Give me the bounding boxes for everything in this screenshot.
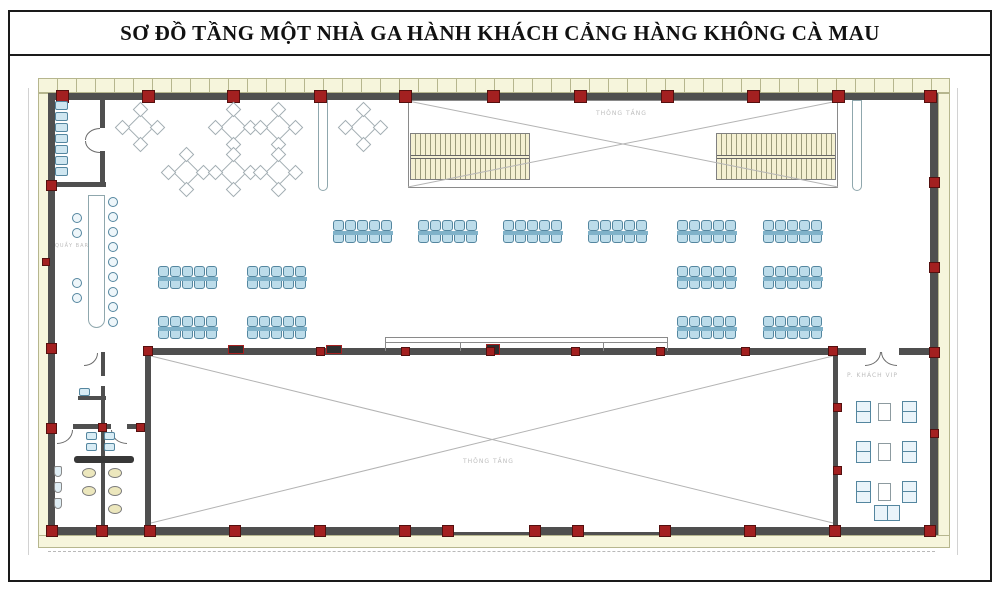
waiting-bench xyxy=(333,220,397,246)
seat xyxy=(725,316,736,327)
column xyxy=(929,347,940,358)
seat xyxy=(677,316,688,327)
seat xyxy=(206,316,217,327)
seat xyxy=(442,220,453,231)
seat xyxy=(787,266,798,277)
column xyxy=(829,525,841,537)
vip-chair xyxy=(856,401,871,423)
seat xyxy=(799,220,810,231)
waiting-bench xyxy=(763,220,827,246)
vip-side-table xyxy=(874,505,900,521)
column xyxy=(142,90,155,103)
bar-stool xyxy=(72,228,82,238)
bench-back xyxy=(158,277,218,281)
urinal xyxy=(54,482,62,493)
waiting-bench xyxy=(588,220,652,246)
cafe-chair xyxy=(150,119,166,135)
column xyxy=(143,346,153,356)
wall-room1-bottom xyxy=(48,182,106,187)
seat xyxy=(283,316,294,327)
sink xyxy=(79,388,90,396)
bench-back xyxy=(677,231,737,235)
cafe-chair xyxy=(115,119,131,135)
column xyxy=(46,343,57,354)
seat xyxy=(588,220,599,231)
column xyxy=(659,525,671,537)
wall-right xyxy=(930,100,938,527)
kiosk-block xyxy=(228,345,244,354)
waiting-bench xyxy=(677,220,741,246)
stair-rail xyxy=(411,155,529,159)
column xyxy=(316,347,325,356)
cafe-table xyxy=(255,104,301,150)
seat xyxy=(295,266,306,277)
wc-sink-counter xyxy=(74,456,134,463)
bench-back xyxy=(588,231,648,235)
column xyxy=(930,429,939,438)
column xyxy=(399,525,411,537)
sink xyxy=(86,443,97,451)
seat xyxy=(454,220,465,231)
wall-room1-lower xyxy=(100,151,105,185)
kiosk-block xyxy=(326,345,342,354)
bar-stool xyxy=(108,197,118,207)
seat xyxy=(799,266,810,277)
vip-chair xyxy=(856,441,871,463)
bar-stool xyxy=(72,278,82,288)
seat xyxy=(811,316,822,327)
bench-back xyxy=(503,231,563,235)
waiting-bench xyxy=(158,266,222,292)
seat xyxy=(701,220,712,231)
seat xyxy=(775,220,786,231)
seat xyxy=(182,316,193,327)
rack-seat xyxy=(55,134,68,143)
seat xyxy=(689,266,700,277)
cafe-chair xyxy=(178,182,194,198)
seat xyxy=(271,266,282,277)
entrance-door-line xyxy=(453,532,533,535)
seat xyxy=(247,316,258,327)
column xyxy=(924,90,937,103)
seat xyxy=(170,266,181,277)
column xyxy=(314,90,327,103)
seat xyxy=(466,220,477,231)
room-label: QUẦY BAR xyxy=(55,243,89,249)
column xyxy=(136,423,145,432)
column xyxy=(229,525,241,537)
bench-back xyxy=(763,231,823,235)
wall-inner-concourse xyxy=(148,348,935,355)
bar-stool xyxy=(72,293,82,303)
cafe-chair xyxy=(355,102,371,118)
column xyxy=(401,347,410,356)
seat xyxy=(430,220,441,231)
counter-tick xyxy=(385,343,386,351)
sink xyxy=(104,443,115,451)
floor-plan: THÔNG TẦNGTHÔNG TẦNGP. KHÁCH VIPQUẦY BAR xyxy=(0,0,1000,591)
rack-seat xyxy=(55,167,68,176)
seat xyxy=(259,266,270,277)
column xyxy=(96,525,108,537)
cafe-chair xyxy=(288,164,304,180)
cafe-chair xyxy=(225,182,241,198)
seat xyxy=(345,220,356,231)
column xyxy=(747,90,760,103)
service-counter xyxy=(385,337,668,343)
sink xyxy=(104,432,115,440)
stair-rail xyxy=(717,155,835,159)
seat xyxy=(725,266,736,277)
column xyxy=(314,525,326,537)
column xyxy=(571,347,580,356)
waiting-bench xyxy=(763,316,827,342)
seat xyxy=(677,220,688,231)
cafe-chair xyxy=(253,119,269,135)
cafe-chair xyxy=(270,182,286,198)
waiting-bench xyxy=(418,220,482,246)
seat xyxy=(701,266,712,277)
seat xyxy=(775,266,786,277)
seat xyxy=(636,220,647,231)
toilet xyxy=(108,486,122,496)
canopy-line-right xyxy=(957,88,958,555)
cafe-table xyxy=(210,149,256,195)
column xyxy=(574,90,587,103)
cafe-chair xyxy=(270,102,286,118)
cafe-chair xyxy=(373,119,389,135)
column xyxy=(833,466,842,475)
column xyxy=(529,525,541,537)
bench-back xyxy=(333,231,393,235)
column xyxy=(661,90,674,103)
seat xyxy=(787,220,798,231)
cafe-chair xyxy=(338,119,354,135)
counter-tick xyxy=(667,343,668,351)
cafe-chair xyxy=(225,147,241,163)
door-arc xyxy=(85,128,100,140)
urinal xyxy=(54,498,62,509)
bar-stool xyxy=(108,242,118,252)
seat xyxy=(381,220,392,231)
seat xyxy=(600,220,611,231)
vip-chair xyxy=(902,401,917,423)
seat xyxy=(418,220,429,231)
seat xyxy=(689,220,700,231)
cafe-chair xyxy=(355,137,371,153)
bench-back xyxy=(247,277,307,281)
bench-back xyxy=(677,327,737,331)
door-arc xyxy=(85,141,100,153)
seat xyxy=(701,316,712,327)
waiting-bench xyxy=(503,220,567,246)
column xyxy=(399,90,412,103)
rack-seat xyxy=(55,156,68,165)
door-gap xyxy=(57,424,73,429)
seat xyxy=(357,220,368,231)
bench-back xyxy=(158,327,218,331)
waiting-bench xyxy=(677,266,741,292)
outer-band-bottom xyxy=(38,535,950,548)
seat xyxy=(624,220,635,231)
seat xyxy=(787,316,798,327)
canopy-line-left xyxy=(28,88,29,555)
staircase-left xyxy=(410,133,530,180)
cafe-table xyxy=(210,104,256,150)
cafe-chair xyxy=(208,164,224,180)
rack-seat xyxy=(55,112,68,121)
toilet xyxy=(82,468,96,478)
column xyxy=(486,347,495,356)
counter-tick xyxy=(603,343,604,351)
cafe-chair xyxy=(161,164,177,180)
column xyxy=(144,525,156,537)
waiting-bench xyxy=(247,316,311,342)
column xyxy=(46,525,58,537)
seat xyxy=(158,266,169,277)
wall-room1-upper xyxy=(100,100,105,128)
bar-stool xyxy=(72,213,82,223)
seat xyxy=(799,316,810,327)
column xyxy=(832,90,845,103)
room-label: THÔNG TẦNG xyxy=(463,458,514,465)
vip-chair xyxy=(902,441,917,463)
bar-counter xyxy=(88,195,105,328)
vip-table xyxy=(878,483,891,501)
cafe-table xyxy=(255,149,301,195)
vip-table xyxy=(878,403,891,421)
toilet xyxy=(108,468,122,478)
bar-stool xyxy=(108,257,118,267)
seat xyxy=(194,266,205,277)
bench-back xyxy=(418,231,478,235)
column xyxy=(828,346,838,356)
seat xyxy=(713,266,724,277)
seat xyxy=(247,266,258,277)
door-arc xyxy=(865,352,881,366)
vip-chair xyxy=(856,481,871,503)
seat xyxy=(283,266,294,277)
toilet xyxy=(82,486,96,496)
door-arc xyxy=(881,352,897,366)
waiting-bench xyxy=(247,266,311,292)
seat xyxy=(515,220,526,231)
waiting-bench xyxy=(158,316,222,342)
sink xyxy=(86,432,97,440)
bar-stool xyxy=(108,317,118,327)
bar-stool xyxy=(108,272,118,282)
bar-stool xyxy=(108,212,118,222)
bench-back xyxy=(247,327,307,331)
cafe-chair xyxy=(270,147,286,163)
vip-table xyxy=(878,443,891,461)
column xyxy=(929,262,940,273)
column xyxy=(42,258,50,266)
column xyxy=(924,525,936,537)
seat xyxy=(763,220,774,231)
cafe-chair xyxy=(132,102,148,118)
cafe-chair xyxy=(178,147,194,163)
wall-hall-left xyxy=(145,352,151,528)
seat xyxy=(551,220,562,231)
bar-stool xyxy=(108,302,118,312)
screen-partition xyxy=(852,100,862,191)
seat xyxy=(539,220,550,231)
column xyxy=(741,347,750,356)
column xyxy=(487,90,500,103)
wall-vip-left xyxy=(833,352,838,528)
door-gap xyxy=(111,424,127,429)
seat xyxy=(713,316,724,327)
seat xyxy=(811,266,822,277)
seat xyxy=(333,220,344,231)
cafe-chair xyxy=(288,119,304,135)
seat xyxy=(170,316,181,327)
cafe-chair xyxy=(225,102,241,118)
urinal xyxy=(54,466,62,477)
screen-partition xyxy=(318,100,328,191)
waiting-bench xyxy=(677,316,741,342)
cafe-chair xyxy=(208,119,224,135)
bar-stool xyxy=(108,287,118,297)
column xyxy=(442,525,454,537)
seat xyxy=(271,316,282,327)
cafe-chair xyxy=(132,137,148,153)
bench-back xyxy=(763,327,823,331)
cafe-table xyxy=(117,104,163,150)
column xyxy=(98,423,107,432)
seat xyxy=(725,220,736,231)
column xyxy=(744,525,756,537)
bar-stool xyxy=(108,227,118,237)
outer-band-right xyxy=(938,93,950,548)
cafe-table xyxy=(163,149,209,195)
waiting-bench xyxy=(763,266,827,292)
cafe-table xyxy=(340,104,386,150)
seat xyxy=(677,266,688,277)
seat xyxy=(194,316,205,327)
seat xyxy=(158,316,169,327)
seat xyxy=(182,266,193,277)
seat xyxy=(206,266,217,277)
toilet xyxy=(108,504,122,514)
column xyxy=(572,525,584,537)
seat xyxy=(369,220,380,231)
counter-tick xyxy=(460,343,461,351)
door-arc xyxy=(84,353,98,366)
seat xyxy=(811,220,822,231)
column xyxy=(833,403,842,412)
room-label: THÔNG TẦNG xyxy=(596,110,647,117)
column xyxy=(46,423,57,434)
door-arc xyxy=(57,430,73,444)
seat xyxy=(775,316,786,327)
room-label: P. KHÁCH VIP xyxy=(847,372,898,379)
wall-room2-h1 xyxy=(78,396,106,400)
seat xyxy=(713,220,724,231)
cafe-chair xyxy=(253,164,269,180)
seat xyxy=(763,266,774,277)
vip-chair xyxy=(902,481,917,503)
column xyxy=(46,180,57,191)
column xyxy=(656,347,665,356)
bench-back xyxy=(763,277,823,281)
rack-seat xyxy=(55,101,68,110)
entrance-door-line xyxy=(583,532,663,535)
column xyxy=(929,177,940,188)
seat xyxy=(503,220,514,231)
rack-seat xyxy=(55,123,68,132)
seat xyxy=(295,316,306,327)
seat xyxy=(259,316,270,327)
dimension-line-bottom xyxy=(48,551,935,552)
seat xyxy=(527,220,538,231)
seat xyxy=(763,316,774,327)
seat xyxy=(612,220,623,231)
seat xyxy=(689,316,700,327)
bench-back xyxy=(677,277,737,281)
rack-seat xyxy=(55,145,68,154)
wall-room2-v1 xyxy=(101,352,105,376)
staircase-right xyxy=(716,133,836,180)
